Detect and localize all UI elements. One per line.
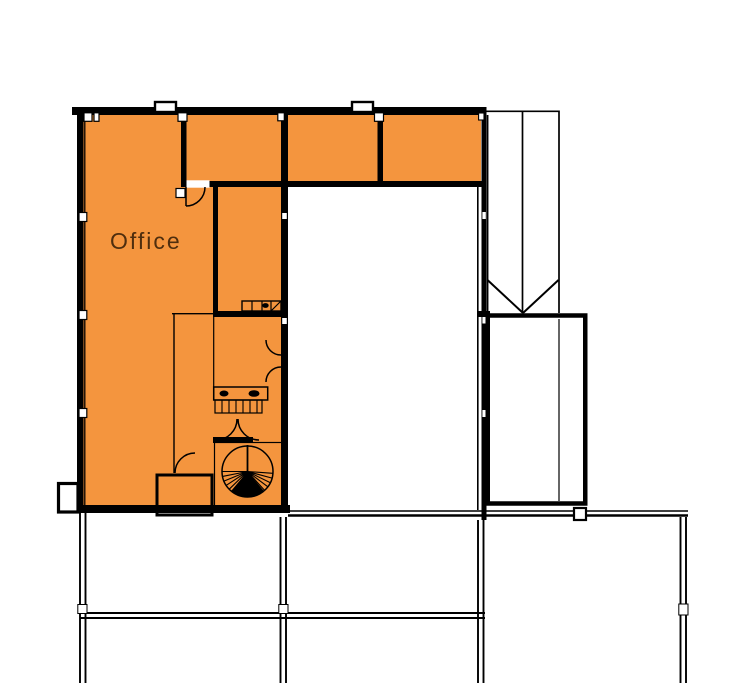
side-annex [477, 311, 585, 504]
cabinet-fixture [262, 303, 268, 308]
window-right-1 [482, 212, 485, 219]
floorplan-image: Office [0, 0, 741, 683]
window-left-3 [79, 409, 87, 418]
window-right-2 [482, 317, 485, 324]
window-left-1 [79, 213, 87, 222]
jamb-divider-1 [178, 113, 187, 122]
wall-corridor-left [213, 187, 218, 316]
jamb-corner-b [94, 113, 99, 122]
roof-shaft [486, 111, 559, 314]
jamb-corner-a [84, 113, 92, 122]
jamb-door-bottom [176, 189, 185, 198]
upper-floor-plan [59, 102, 487, 520]
fixture-left [220, 391, 229, 397]
office-room-label: Office [110, 228, 182, 255]
window-right-3 [482, 410, 485, 417]
jamb-right-top [479, 113, 484, 120]
window-core-1 [282, 213, 287, 219]
fixture-right [249, 390, 260, 397]
jamb-divider-2 [375, 113, 384, 122]
door-opening [187, 180, 210, 187]
lower-jamb-2 [279, 605, 288, 614]
lower-window-right [679, 604, 688, 615]
wall-band-bottom [181, 181, 486, 187]
floorplan-svg [0, 0, 741, 683]
window-core-2 [282, 318, 287, 324]
wall-right-inner [477, 186, 479, 510]
lower-vertical-walls [80, 513, 686, 683]
lower-jamb-1 [78, 605, 87, 614]
window-left-2 [79, 311, 87, 320]
jamb-core-top [278, 113, 285, 121]
post-notch [574, 508, 586, 520]
lower-floor-outline [78, 508, 688, 683]
annex-outline [488, 316, 586, 504]
annex-connector [477, 311, 490, 317]
shaft-outline [486, 111, 559, 314]
roof-notch-left [155, 102, 176, 112]
left-protrusion [59, 484, 79, 513]
roof-notch-right [352, 102, 373, 112]
wall-mid-horizontal [213, 311, 288, 317]
